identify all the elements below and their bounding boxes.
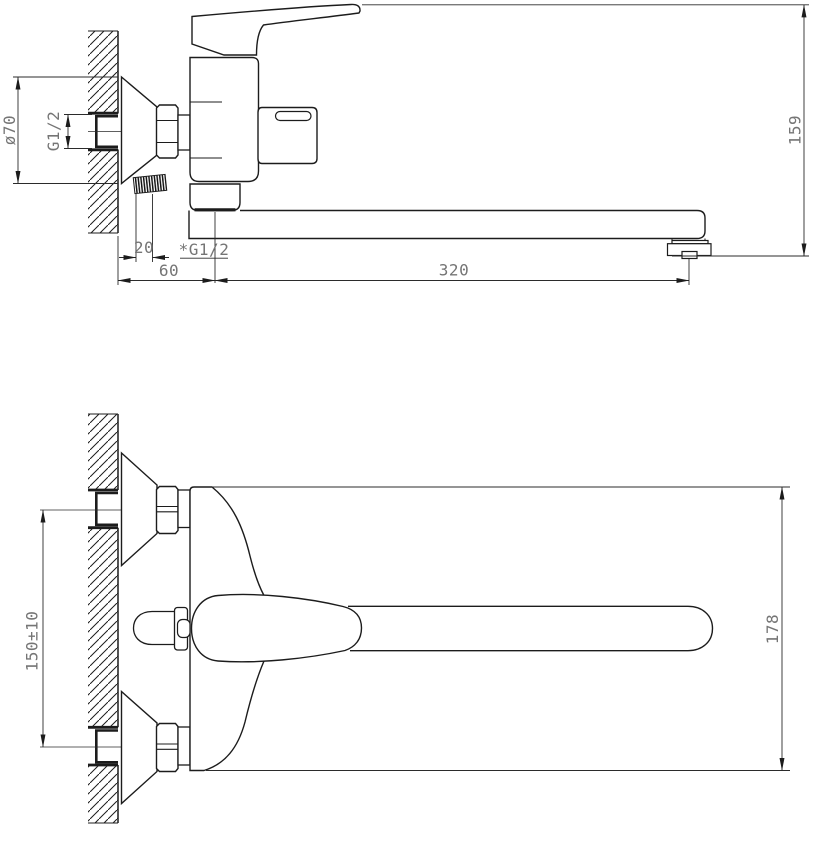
shower-bracket bbox=[258, 108, 317, 164]
dim-159-label: 159 bbox=[786, 115, 805, 145]
valve-body bbox=[190, 58, 259, 182]
dim-150-label: 150±10 bbox=[23, 611, 42, 672]
eccentric-union-bottom bbox=[122, 692, 158, 804]
spout bbox=[189, 211, 705, 239]
shower-connection-plan bbox=[134, 608, 191, 651]
thread-stub bbox=[133, 174, 166, 193]
faucet-technical-drawing: ø70 G1/2 20 60 320 bbox=[0, 0, 815, 847]
dim-20: 20 bbox=[119, 194, 169, 262]
dim-20-label: 20 bbox=[134, 238, 154, 257]
dim-diameter-70-label: ø70 bbox=[0, 115, 19, 145]
dim-159: 159 bbox=[362, 5, 809, 256]
dim-wall-thread: G1/2 bbox=[44, 111, 92, 152]
connector bbox=[178, 115, 190, 150]
connector-bottom bbox=[178, 727, 190, 765]
aerator bbox=[668, 239, 712, 259]
eccentric-union-top bbox=[122, 453, 158, 566]
spout-plan bbox=[348, 606, 713, 650]
dim-320-label: 320 bbox=[439, 261, 469, 280]
union-nut bbox=[157, 105, 179, 158]
connector-top bbox=[178, 490, 190, 528]
handle-lever bbox=[192, 4, 360, 55]
dim-320: 320 bbox=[215, 259, 689, 285]
dim-outlet-thread: *G1/2 bbox=[179, 212, 230, 283]
union-nut-bottom bbox=[157, 724, 179, 772]
union-nut-top bbox=[157, 487, 179, 534]
dim-outlet-thread-label: *G1/2 bbox=[179, 240, 230, 259]
wall-pipe-top bbox=[40, 492, 124, 527]
dim-wall-thread-label: G1/2 bbox=[44, 111, 63, 152]
side-view: ø70 G1/2 20 60 320 bbox=[0, 4, 809, 285]
handle-lever-plan bbox=[192, 594, 362, 661]
wall-pipe bbox=[88, 115, 122, 148]
dim-178-label: 178 bbox=[763, 614, 782, 644]
shower-outlet bbox=[190, 184, 240, 211]
dim-60-label: 60 bbox=[159, 261, 179, 280]
plan-view: 150±10 178 bbox=[23, 414, 791, 823]
eccentric-union bbox=[122, 77, 158, 184]
drawing-canvas: ø70 G1/2 20 60 320 bbox=[0, 0, 815, 847]
dim-150: 150±10 bbox=[23, 510, 44, 747]
bracket-slot bbox=[276, 112, 312, 121]
wall-pipe-bottom bbox=[40, 729, 124, 764]
